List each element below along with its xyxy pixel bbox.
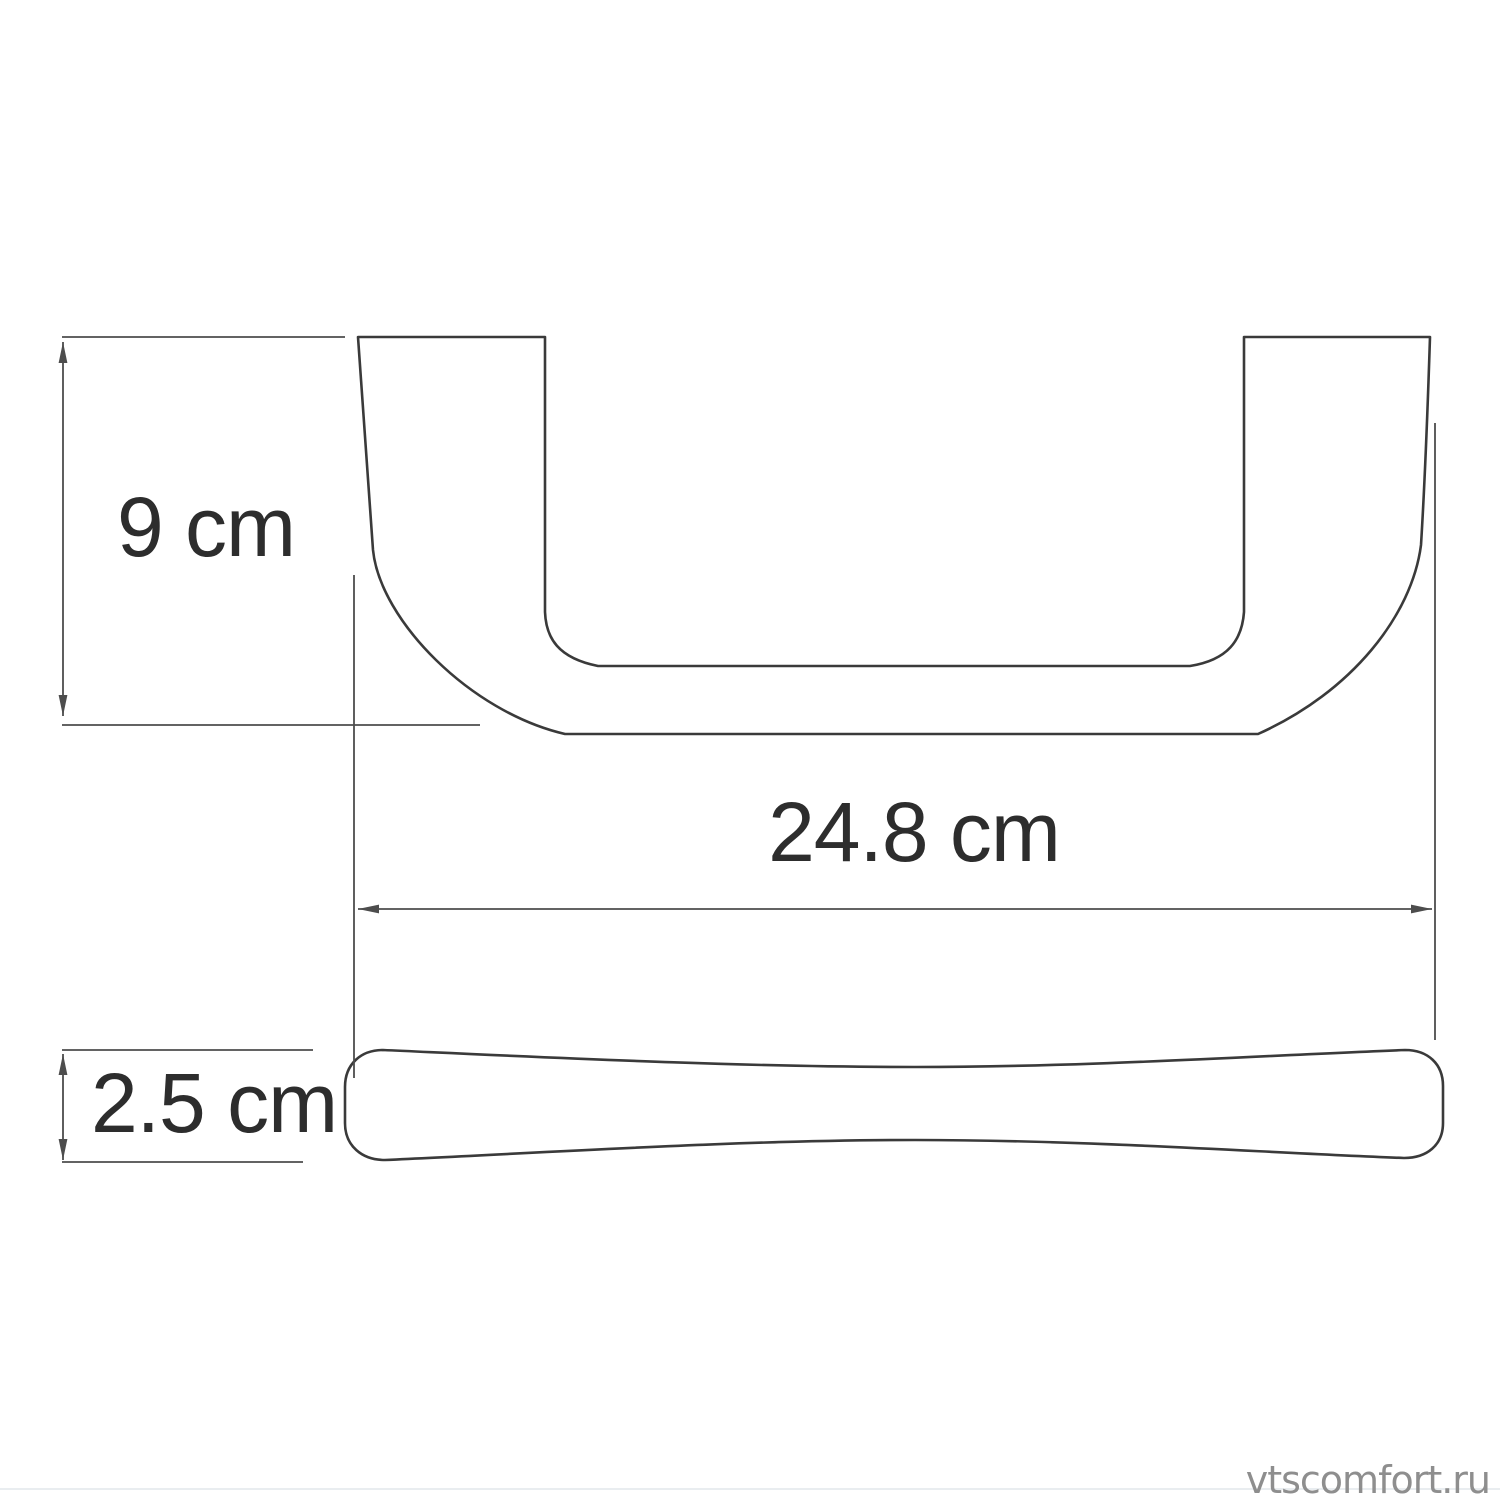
thickness-arrowhead-down <box>59 1139 68 1160</box>
height-dimension-label: 9 cm <box>117 480 295 574</box>
thickness-dimension-label: 2.5 cm <box>91 1056 337 1150</box>
length-arrowhead-right <box>1411 905 1432 914</box>
side-view-outline <box>345 1050 1443 1160</box>
height-arrowhead-down <box>59 695 68 716</box>
technical-drawing-canvas: 9 cm 24.8 cm 2.5 cm vtscomfort.ru <box>0 0 1500 1500</box>
length-dimension-label: 24.8 cm <box>768 785 1060 879</box>
watermark-text: vtscomfort.ru <box>1246 1458 1490 1500</box>
front-view-outline <box>358 337 1430 734</box>
dimension-diagram: 9 cm 24.8 cm 2.5 cm vtscomfort.ru <box>0 0 1500 1500</box>
length-arrowhead-left <box>358 905 379 914</box>
thickness-arrowhead-up <box>59 1054 68 1075</box>
height-arrowhead-up <box>59 342 68 363</box>
